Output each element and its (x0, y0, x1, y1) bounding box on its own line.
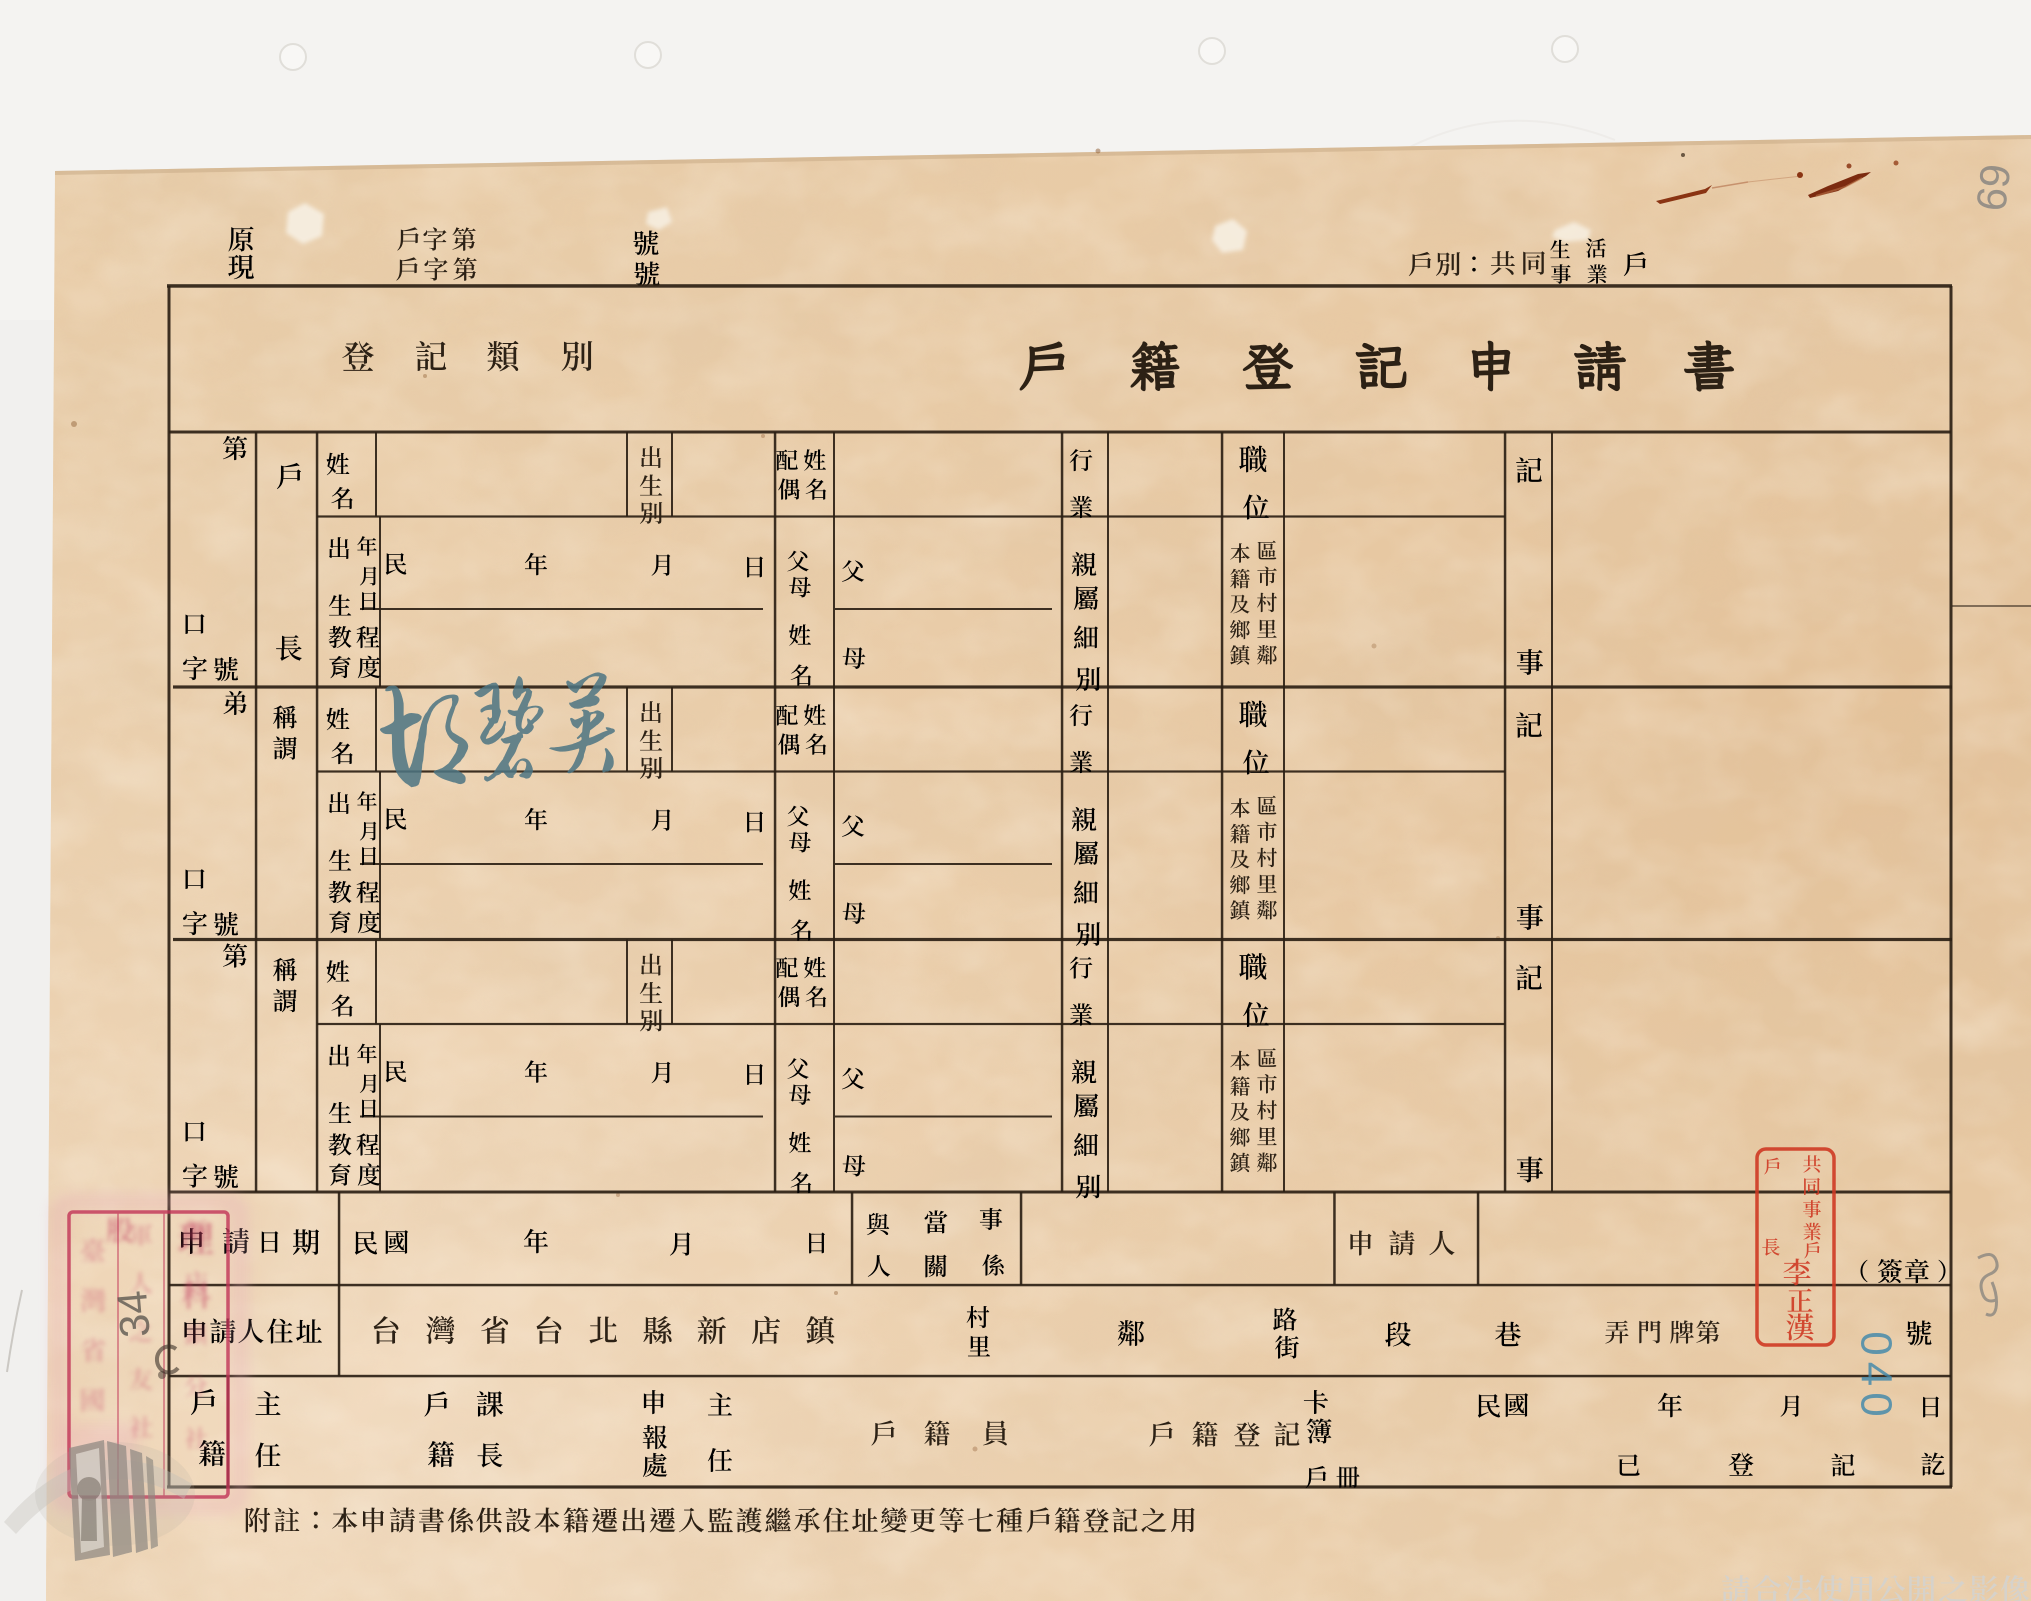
svg-text:69: 69 (1967, 161, 2019, 213)
svg-text:040: 040 (1852, 1331, 1901, 1422)
svg-text:34: 34 (108, 1289, 159, 1340)
